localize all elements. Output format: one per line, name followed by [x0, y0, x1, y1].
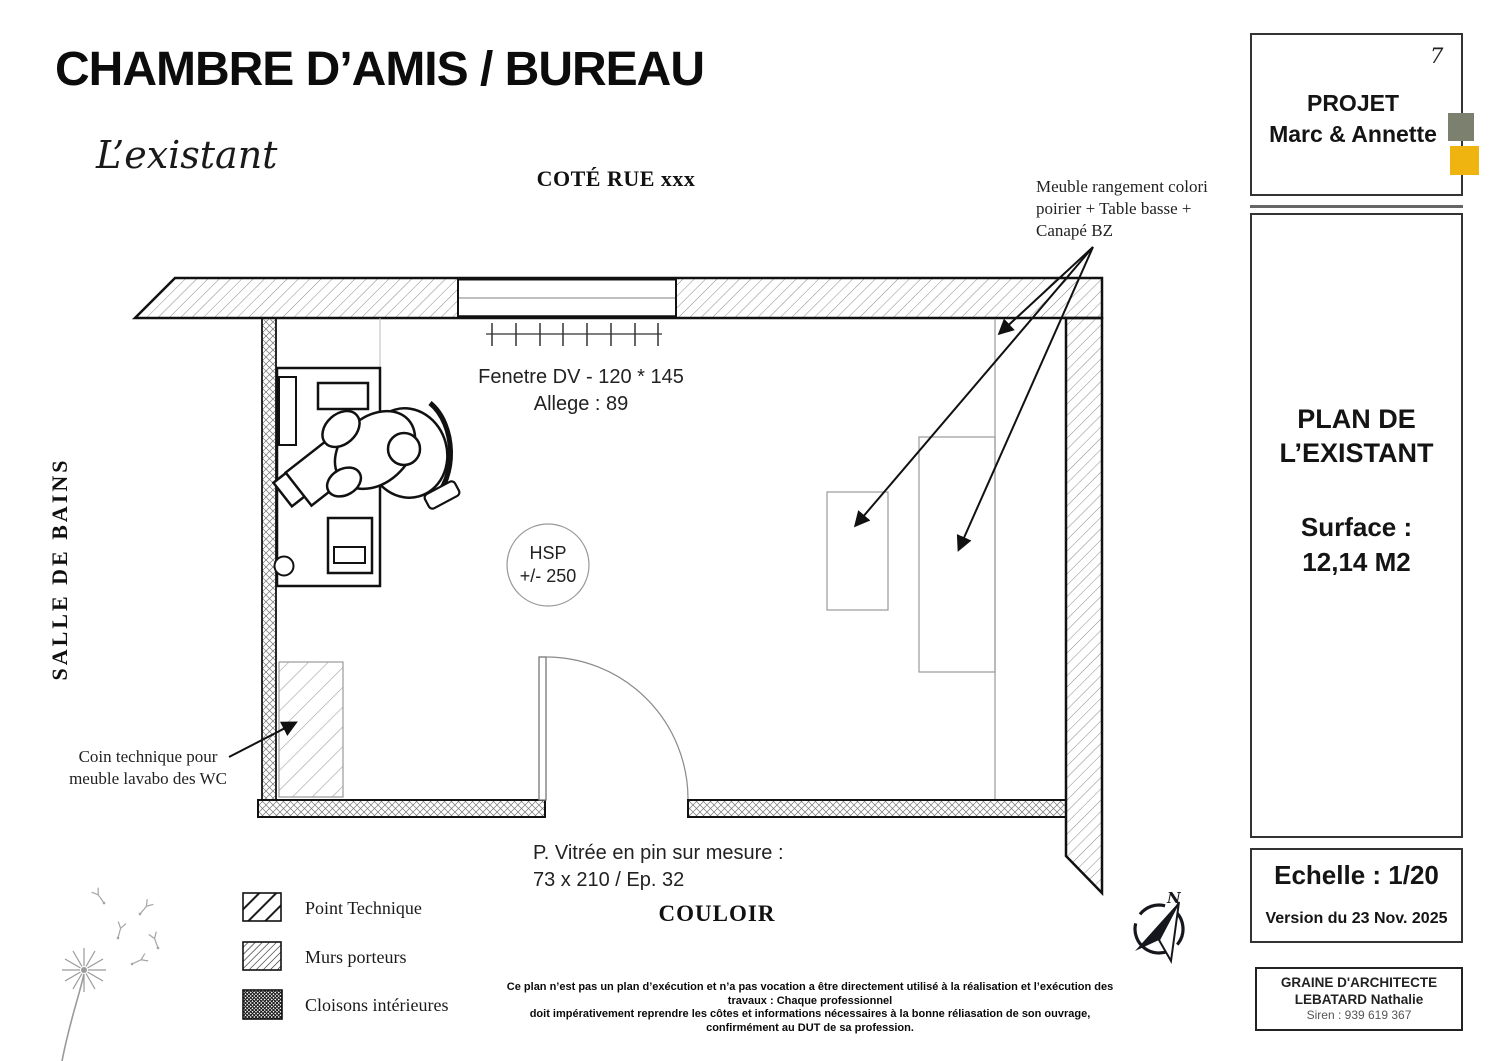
- wall-right: [1066, 318, 1102, 893]
- surface-value: 12,14 M2: [1250, 545, 1463, 580]
- plan-title: PLAN DE L’EXISTANT: [1250, 402, 1463, 470]
- project-label: PROJET: [1250, 88, 1456, 119]
- compass-icon: N: [1126, 889, 1193, 962]
- scale-label: Echelle : 1/20: [1250, 860, 1463, 891]
- door: [539, 657, 688, 800]
- disclaimer-line2: doit impérativement reprendre les côtes …: [495, 1008, 1125, 1035]
- version-label: Version du 23 Nov. 2025: [1250, 910, 1463, 928]
- hsp-annotation: HSP +/- 250: [498, 542, 598, 588]
- legend-label-murs-porteurs: Murs porteurs: [305, 947, 407, 968]
- radiator: [486, 323, 662, 346]
- door-annotation: P. Vitrée en pin sur mesure : 73 x 210 /…: [533, 840, 784, 894]
- hsp-line1: HSP: [498, 542, 598, 565]
- window-double-vitrage: [458, 279, 676, 318]
- page-number: 7: [1430, 44, 1443, 68]
- window-annotation-line2: Allege : 89: [431, 391, 731, 418]
- wall-bottom-partition: [258, 800, 1066, 817]
- firm-siren: Siren : 939 619 367: [1255, 1008, 1463, 1023]
- door-annotation-line2: 73 x 210 / Ep. 32: [533, 867, 784, 894]
- door-annotation-line1: P. Vitrée en pin sur mesure :: [533, 840, 784, 867]
- street-side-label: COTÉ RUE xxx: [466, 166, 766, 192]
- firm-name: GRAINE D'ARCHITECTE: [1255, 974, 1463, 991]
- technical-corner-annotation: Coin technique pour meuble lavabo des WC: [63, 746, 233, 790]
- accent-square-yellow: [1450, 146, 1479, 175]
- accent-square-gray: [1448, 113, 1474, 141]
- storage-annotation: Meuble rangement colori poirier + Table …: [1036, 176, 1216, 242]
- project-title: PROJET Marc & Annette: [1250, 88, 1456, 150]
- legend-swatch-cloisons: [242, 989, 283, 1020]
- legend-swatch-murs-porteurs: [242, 941, 282, 971]
- corridor-label: COULOIR: [567, 901, 867, 927]
- disclaimer: Ce plan n’est pas un plan d’exécution et…: [495, 981, 1125, 1035]
- bathroom-label: SALLE DE BAINS: [47, 454, 73, 684]
- firm-info: GRAINE D'ARCHITECTE LEBATARD Nathalie Si…: [1255, 974, 1463, 1023]
- page-title: CHAMBRE D’AMIS / BUREAU: [55, 42, 704, 97]
- surface-label: Surface :: [1250, 510, 1463, 545]
- surface-info: Surface : 12,14 M2: [1250, 510, 1463, 580]
- technical-corner-zone: [279, 662, 343, 797]
- legend-label-cloisons: Cloisons intérieures: [305, 995, 448, 1016]
- plan-subtitle: L’existant: [96, 133, 277, 177]
- dandelion-decoration: [62, 888, 162, 1061]
- floor-plan-page: N: [0, 0, 1500, 1061]
- legend-swatch-point-technique: [242, 892, 282, 922]
- wall-top: [135, 278, 1102, 318]
- window-annotation-line1: Fenetre DV - 120 * 145: [431, 364, 731, 391]
- legend-label-point-technique: Point Technique: [305, 898, 422, 919]
- titleblock-divider: [1250, 205, 1463, 208]
- compass-north-label: N: [1166, 889, 1182, 907]
- window-annotation: Fenetre DV - 120 * 145 Allege : 89: [431, 364, 731, 418]
- disclaimer-line1: Ce plan n’est pas un plan d’exécution et…: [495, 981, 1125, 1008]
- wall-left-partition: [262, 318, 276, 800]
- plan-title-line2: L’EXISTANT: [1250, 436, 1463, 470]
- hsp-line2: +/- 250: [498, 565, 598, 588]
- plan-title-line1: PLAN DE: [1250, 402, 1463, 436]
- project-client: Marc & Annette: [1250, 119, 1456, 150]
- firm-person: LEBATARD Nathalie: [1255, 991, 1463, 1008]
